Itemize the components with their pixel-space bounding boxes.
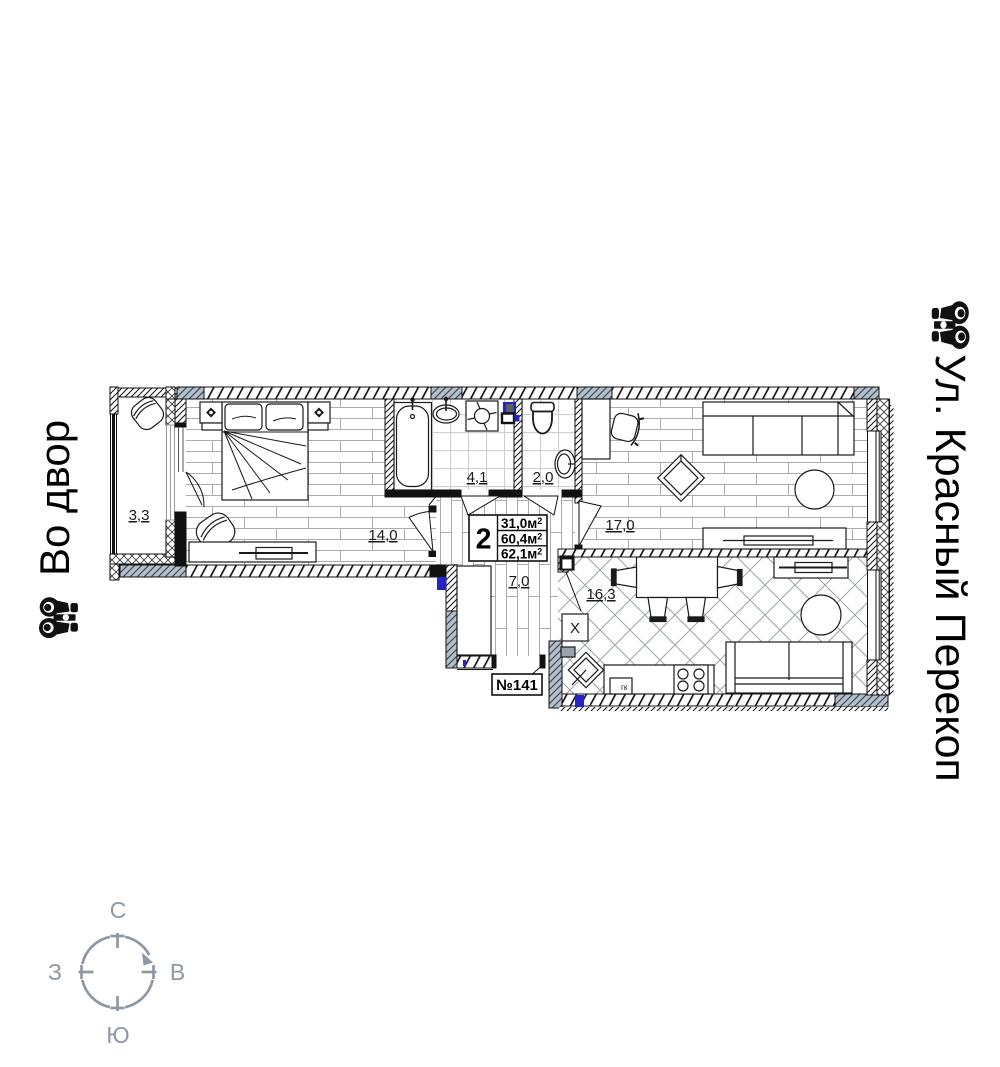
svg-text:3,3: 3,3 bbox=[129, 507, 150, 524]
svg-text:16,3: 16,3 bbox=[586, 586, 615, 603]
svg-text:гк: гк bbox=[621, 683, 628, 692]
svg-text:62,1м2: 62,1м2 bbox=[501, 547, 542, 562]
svg-text:31,0м2: 31,0м2 bbox=[501, 516, 542, 531]
svg-text:7,0: 7,0 bbox=[509, 573, 530, 590]
svg-text:З: З bbox=[48, 959, 62, 985]
svg-text:С: С bbox=[110, 897, 127, 923]
svg-text:№141: №141 bbox=[496, 677, 538, 694]
svg-text:17,0: 17,0 bbox=[605, 517, 634, 534]
svg-text:4,1: 4,1 bbox=[467, 469, 488, 486]
svg-text:Ю: Ю bbox=[106, 1022, 129, 1048]
svg-text:60,4м2: 60,4м2 bbox=[501, 532, 542, 547]
svg-text:2,0: 2,0 bbox=[533, 469, 554, 486]
svg-text:Х: Х bbox=[570, 620, 580, 637]
svg-text:14,0: 14,0 bbox=[368, 527, 397, 544]
svg-text:Ул. Красный Перекоп: Ул. Красный Перекоп bbox=[926, 354, 974, 782]
svg-text:В: В bbox=[170, 959, 185, 985]
svg-text:2: 2 bbox=[476, 524, 492, 556]
svg-text:Во двор: Во двор bbox=[31, 420, 78, 576]
